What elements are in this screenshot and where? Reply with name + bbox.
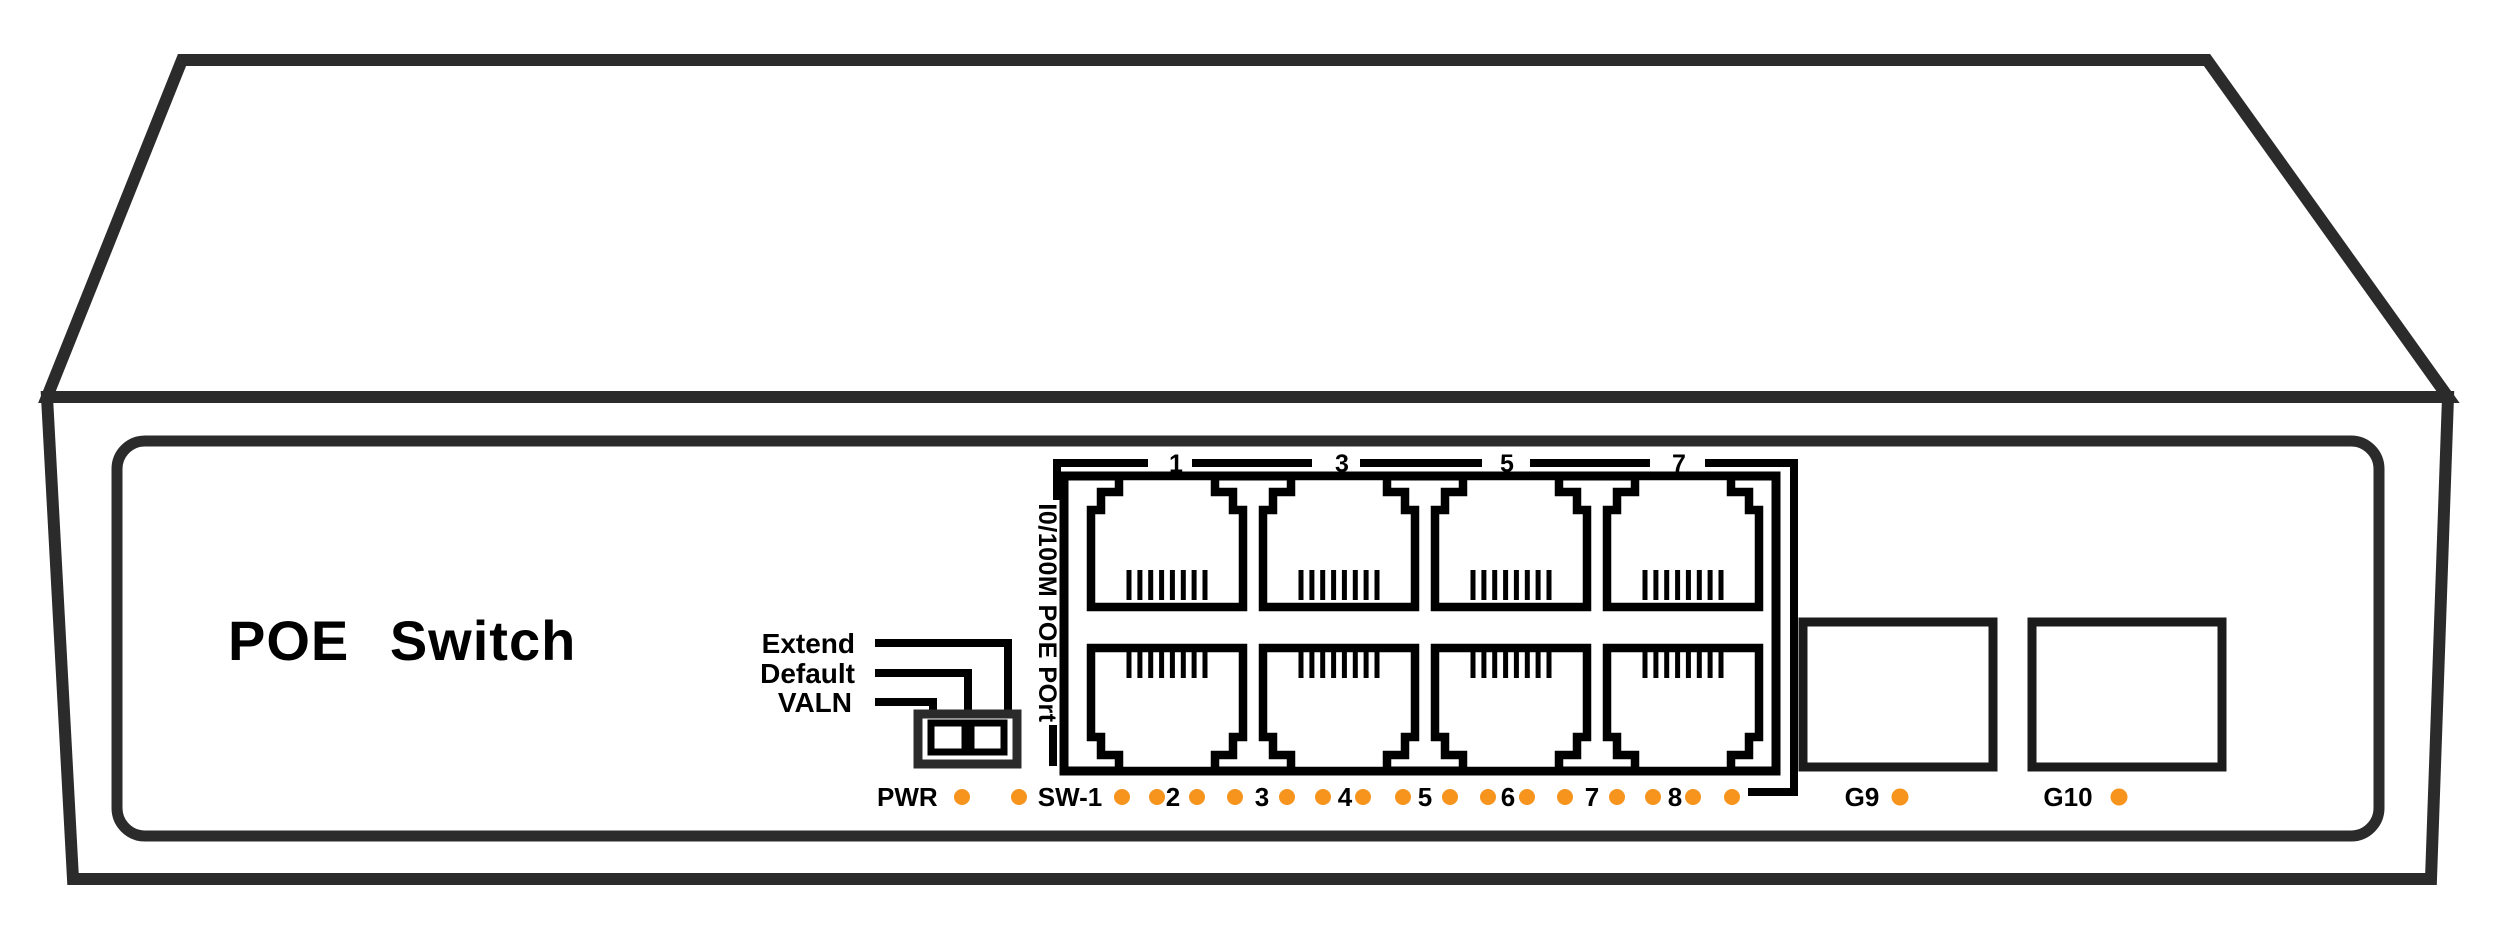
uplink-port-g10-box <box>2032 622 2222 767</box>
uplink-port-g9-box <box>1803 622 1993 767</box>
led-dot <box>1355 789 1371 805</box>
led-dot <box>1114 789 1130 805</box>
led-dot <box>1645 789 1661 805</box>
led-dot <box>1557 789 1573 805</box>
uplink-label-g10: G10 <box>2043 782 2092 812</box>
led-dot <box>1279 789 1295 805</box>
dip-label-default: Default <box>760 658 855 689</box>
led-label-port2: 2 <box>1166 782 1180 812</box>
led-label-port8: 8 <box>1668 782 1682 812</box>
led-label-port6: 6 <box>1501 782 1515 812</box>
led-dot <box>1189 789 1205 805</box>
led-label-port4: 4 <box>1338 782 1353 812</box>
rj45-jack-outline <box>1263 648 1415 771</box>
rj45-port <box>1263 648 1415 771</box>
rj45-jack-outline <box>1091 476 1243 607</box>
led-dot <box>1724 789 1740 805</box>
rj45-jack-outline <box>1607 476 1759 607</box>
rj45-jack-outline <box>1607 648 1759 771</box>
rj45-jack-outline <box>1091 648 1243 771</box>
poe-switch-diagram: POE Switch Extend Default VALN 1 3 5 7 I… <box>0 0 2495 928</box>
led-dot <box>954 789 970 805</box>
uplink-led-dot <box>2111 789 2128 806</box>
uplink-led-dot <box>1892 789 1909 806</box>
led-label-port7: 7 <box>1585 782 1599 812</box>
rj45-port <box>1435 476 1587 607</box>
led-label-sw1: SW-1 <box>1038 782 1102 812</box>
led-dot <box>1315 789 1331 805</box>
led-dot <box>1227 789 1243 805</box>
diagram-canvas: POE Switch Extend Default VALN 1 3 5 7 I… <box>0 0 2495 928</box>
rj45-port <box>1263 476 1415 607</box>
led-label-pwr: PWR <box>877 782 938 812</box>
rj45-port <box>1091 648 1243 771</box>
led-dot <box>1480 789 1496 805</box>
led-dot <box>1149 789 1165 805</box>
case-top-face <box>47 60 2448 397</box>
port-group-label: I0/100M POE POrt <box>1033 503 1061 722</box>
dip-label-valn: VALN <box>778 687 852 718</box>
rj45-jack-outline <box>1435 476 1587 607</box>
rj45-jack-outline <box>1263 476 1415 607</box>
rj45-port <box>1607 476 1759 607</box>
dip-switch-toggle-1 <box>931 723 965 752</box>
led-dot <box>1442 789 1458 805</box>
led-label-port5: 5 <box>1418 782 1432 812</box>
led-dot <box>1519 789 1535 805</box>
dip-label-extend: Extend <box>762 628 855 659</box>
led-dot <box>1011 789 1027 805</box>
led-dot <box>1395 789 1411 805</box>
rj45-port <box>1435 648 1587 771</box>
led-dot <box>1609 789 1625 805</box>
rj45-jack-outline <box>1435 648 1587 771</box>
device-title: POE Switch <box>228 609 576 672</box>
led-dot <box>1685 789 1701 805</box>
uplink-label-g9: G9 <box>1845 782 1880 812</box>
rj45-port <box>1607 648 1759 771</box>
rj45-port <box>1091 476 1243 607</box>
led-label-port3: 3 <box>1255 782 1269 812</box>
dip-switch-toggle-2 <box>971 723 1004 752</box>
